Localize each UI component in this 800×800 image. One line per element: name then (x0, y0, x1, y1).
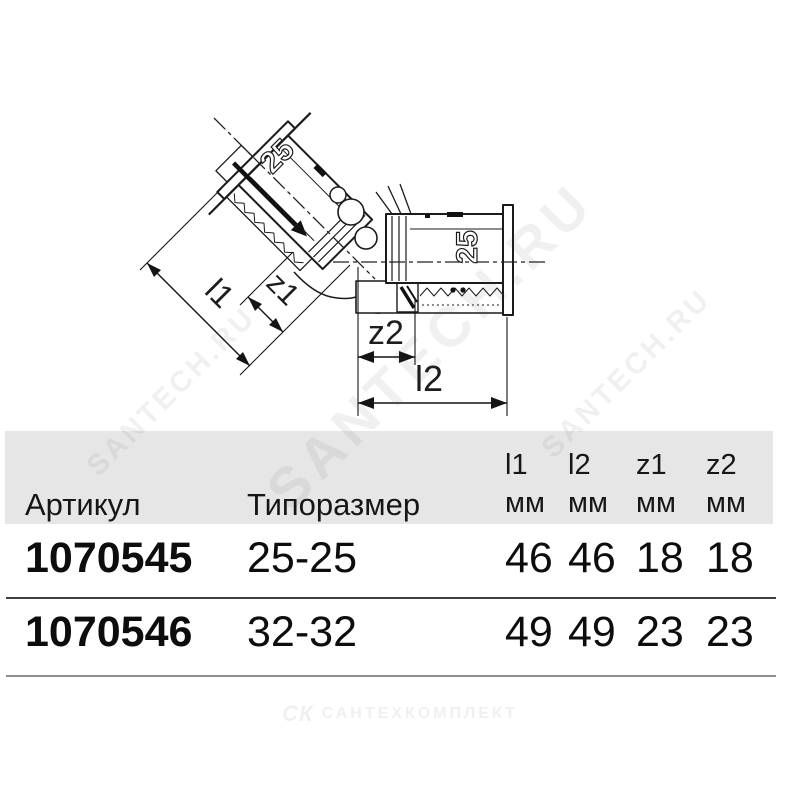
row-divider (6, 597, 776, 599)
fitting-technical-drawing: l2 z2 l1 z1 25 25 (0, 0, 800, 430)
table-row-1-z2: 18 (706, 536, 754, 581)
dim-col-name: l1 (505, 450, 545, 480)
dim-col-name: z1 (636, 450, 676, 480)
table-row-2-z1: 23 (636, 610, 684, 655)
table-row-1-size: 25-25 (247, 536, 357, 581)
column-header-article: Артикул (25, 489, 141, 522)
column-header-l1: l1 мм (505, 450, 545, 518)
dim-col-unit: мм (505, 488, 545, 518)
dim-col-name: z2 (706, 450, 746, 480)
table-row-2-l1: 49 (505, 610, 553, 655)
dim-col-name: l2 (568, 450, 608, 480)
column-header-l2: l2 мм (568, 450, 608, 518)
table-row-1-article: 1070545 (25, 536, 192, 581)
dim-col-unit: мм (636, 488, 676, 518)
table-row-1-l2: 46 (568, 536, 616, 581)
column-header-z1: z1 мм (636, 450, 676, 518)
dim-col-unit: мм (706, 488, 746, 518)
table-row-1-l1: 46 (505, 536, 553, 581)
vendor-logo-icon: СК (282, 701, 313, 727)
table-row-2-z2: 23 (706, 610, 754, 655)
column-header-z2: z2 мм (706, 450, 746, 518)
table-row-2-size: 32-32 (247, 610, 357, 655)
horizontal-press-end (356, 184, 513, 315)
table-row-1-z1: 18 (636, 536, 684, 581)
dim-label-l2: l2 (415, 358, 443, 399)
table-bottom-divider (6, 675, 776, 677)
dim-col-unit: мм (568, 488, 608, 518)
sleeve-mark-horizontal: 25 (451, 230, 484, 263)
vendor-logo-text: САНТЕХКОМПЛЕКТ (322, 705, 518, 723)
catalog-page: l2 z2 l1 z1 25 25 Артикул Типоразмер l1 … (0, 0, 800, 800)
dim-label-z1: z1 (260, 266, 306, 312)
vendor-logo: СК САНТЕХКОМПЛЕКТ (0, 701, 800, 727)
table-row-2-l2: 49 (568, 610, 616, 655)
column-header-size: Типоразмер (247, 489, 420, 522)
table-row-2-article: 1070546 (25, 610, 192, 655)
dim-label-l1: l1 (198, 272, 241, 315)
dim-label-z2: z2 (368, 314, 404, 352)
